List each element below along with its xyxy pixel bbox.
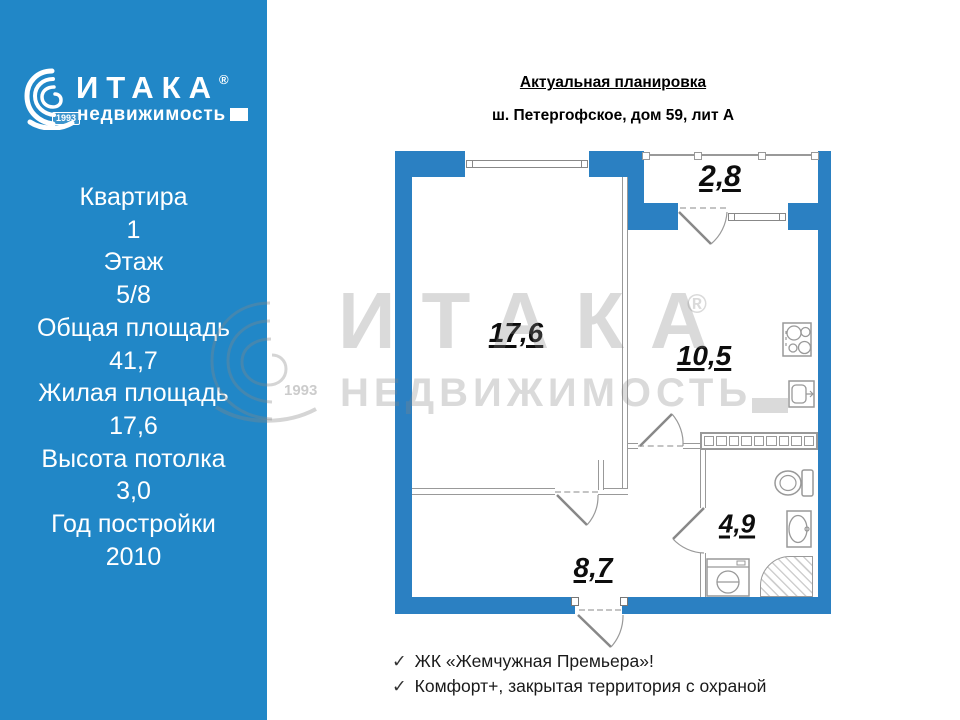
info-line: 17,6 <box>0 410 267 443</box>
window-end <box>466 160 473 168</box>
info-line: 2010 <box>0 541 267 574</box>
window-end <box>779 213 786 221</box>
balcony-door-dash <box>680 207 726 209</box>
washing-machine-icon <box>706 558 750 597</box>
address: ш. Петергофское, дом 59, лит А <box>395 107 831 125</box>
feature-text: ЖК «Жемчужная Премьера»! <box>415 651 654 671</box>
wall-door-jamb <box>598 460 604 490</box>
window-glass <box>472 160 582 168</box>
info-line: 5/8 <box>0 279 267 312</box>
bath-sink-icon <box>786 510 812 548</box>
room-label-hall: 8,7 <box>574 552 613 584</box>
sidebar: ИТАКА® 1993 недвижимость Квартира 1 Этаж… <box>0 0 267 720</box>
feature-text: Комфорт+, закрытая территория с охраной <box>415 676 767 696</box>
wall-kitchen-hall <box>683 443 700 449</box>
info-line: 1 <box>0 214 267 247</box>
door-entrance <box>576 614 626 654</box>
logo-subtitle: недвижимость <box>77 104 248 126</box>
entrance-opening <box>575 597 622 614</box>
wall-balcony-left <box>628 151 644 230</box>
entrance-jamb <box>571 597 579 606</box>
feature-item: ✓ЖК «Жемчужная Премьера»! <box>392 649 766 674</box>
window-living-room <box>465 151 589 177</box>
info-line: Год постройки <box>0 508 267 541</box>
room-label-living: 17,6 <box>489 317 544 349</box>
logo-brand: ИТАКА® <box>76 70 229 106</box>
plan-header: Актуальная планировка ш. Петергофское, д… <box>395 74 831 125</box>
room-label-kitchen: 10,5 <box>677 340 732 372</box>
living-door-dash <box>555 491 598 493</box>
stove-icon <box>782 322 812 357</box>
room-label-bath: 4,9 <box>719 509 755 540</box>
toilet-icon <box>773 468 815 498</box>
wall-bath-hall <box>700 450 706 508</box>
balcony-mullion <box>694 152 702 160</box>
info-line: Жилая площадь <box>0 377 267 410</box>
flyer-page: ИТАКА® 1993 недвижимость Квартира 1 Этаж… <box>0 0 960 720</box>
watermark-year: 1993 <box>284 382 317 399</box>
registered-mark: ® <box>219 72 229 87</box>
plan-title: Актуальная планировка <box>395 74 831 92</box>
kitchen-sink-icon <box>788 380 815 408</box>
window-end <box>581 160 588 168</box>
wall-kitchen-hall <box>628 443 638 449</box>
features-list: ✓ЖК «Жемчужная Премьера»! ✓Комфорт+, зак… <box>392 649 766 699</box>
info-line: Этаж <box>0 246 267 279</box>
balcony-mullion <box>642 152 650 160</box>
itaka-logo: ИТАКА® 1993 недвижимость <box>0 0 267 150</box>
floor-plan: 2,8 17,6 10,5 8,7 4,9 <box>395 148 831 653</box>
logo-brand-text: ИТАКА <box>76 70 219 105</box>
wall-living-hall <box>412 488 555 495</box>
window-end <box>728 213 735 221</box>
logo-year-badge: 1993 <box>52 112 80 125</box>
door-bathroom <box>667 506 707 556</box>
feature-item: ✓Комфорт+, закрытая территория с охраной <box>392 674 766 699</box>
shower-icon <box>760 556 813 597</box>
entrance-threshold <box>579 609 621 611</box>
window-kitchen <box>728 209 786 224</box>
door-living-room <box>555 494 601 532</box>
wall-right <box>818 151 831 614</box>
window-glass <box>735 213 779 221</box>
logo-bar <box>230 108 248 121</box>
wall-bottom <box>395 597 831 614</box>
door-kitchen <box>638 406 685 448</box>
info-line: 3,0 <box>0 475 267 508</box>
balcony-mullion <box>811 152 819 160</box>
balcony-door <box>678 210 728 250</box>
room-label-balcony: 2,8 <box>699 160 741 194</box>
check-icon: ✓ <box>392 676 407 696</box>
info-line: Общая площадь <box>0 312 267 345</box>
logo-subtitle-text: недвижимость <box>77 104 226 125</box>
check-icon: ✓ <box>392 651 407 671</box>
apartment-info: Квартира 1 Этаж 5/8 Общая площадь 41,7 Ж… <box>0 181 267 573</box>
balcony-mullion <box>758 152 766 160</box>
wall-left <box>395 151 412 614</box>
info-line: Квартира <box>0 181 267 214</box>
entrance-jamb <box>620 597 628 606</box>
info-line: Высота потолка <box>0 443 267 476</box>
info-line: 41,7 <box>0 345 267 378</box>
wall-vent-shaft <box>700 432 818 450</box>
